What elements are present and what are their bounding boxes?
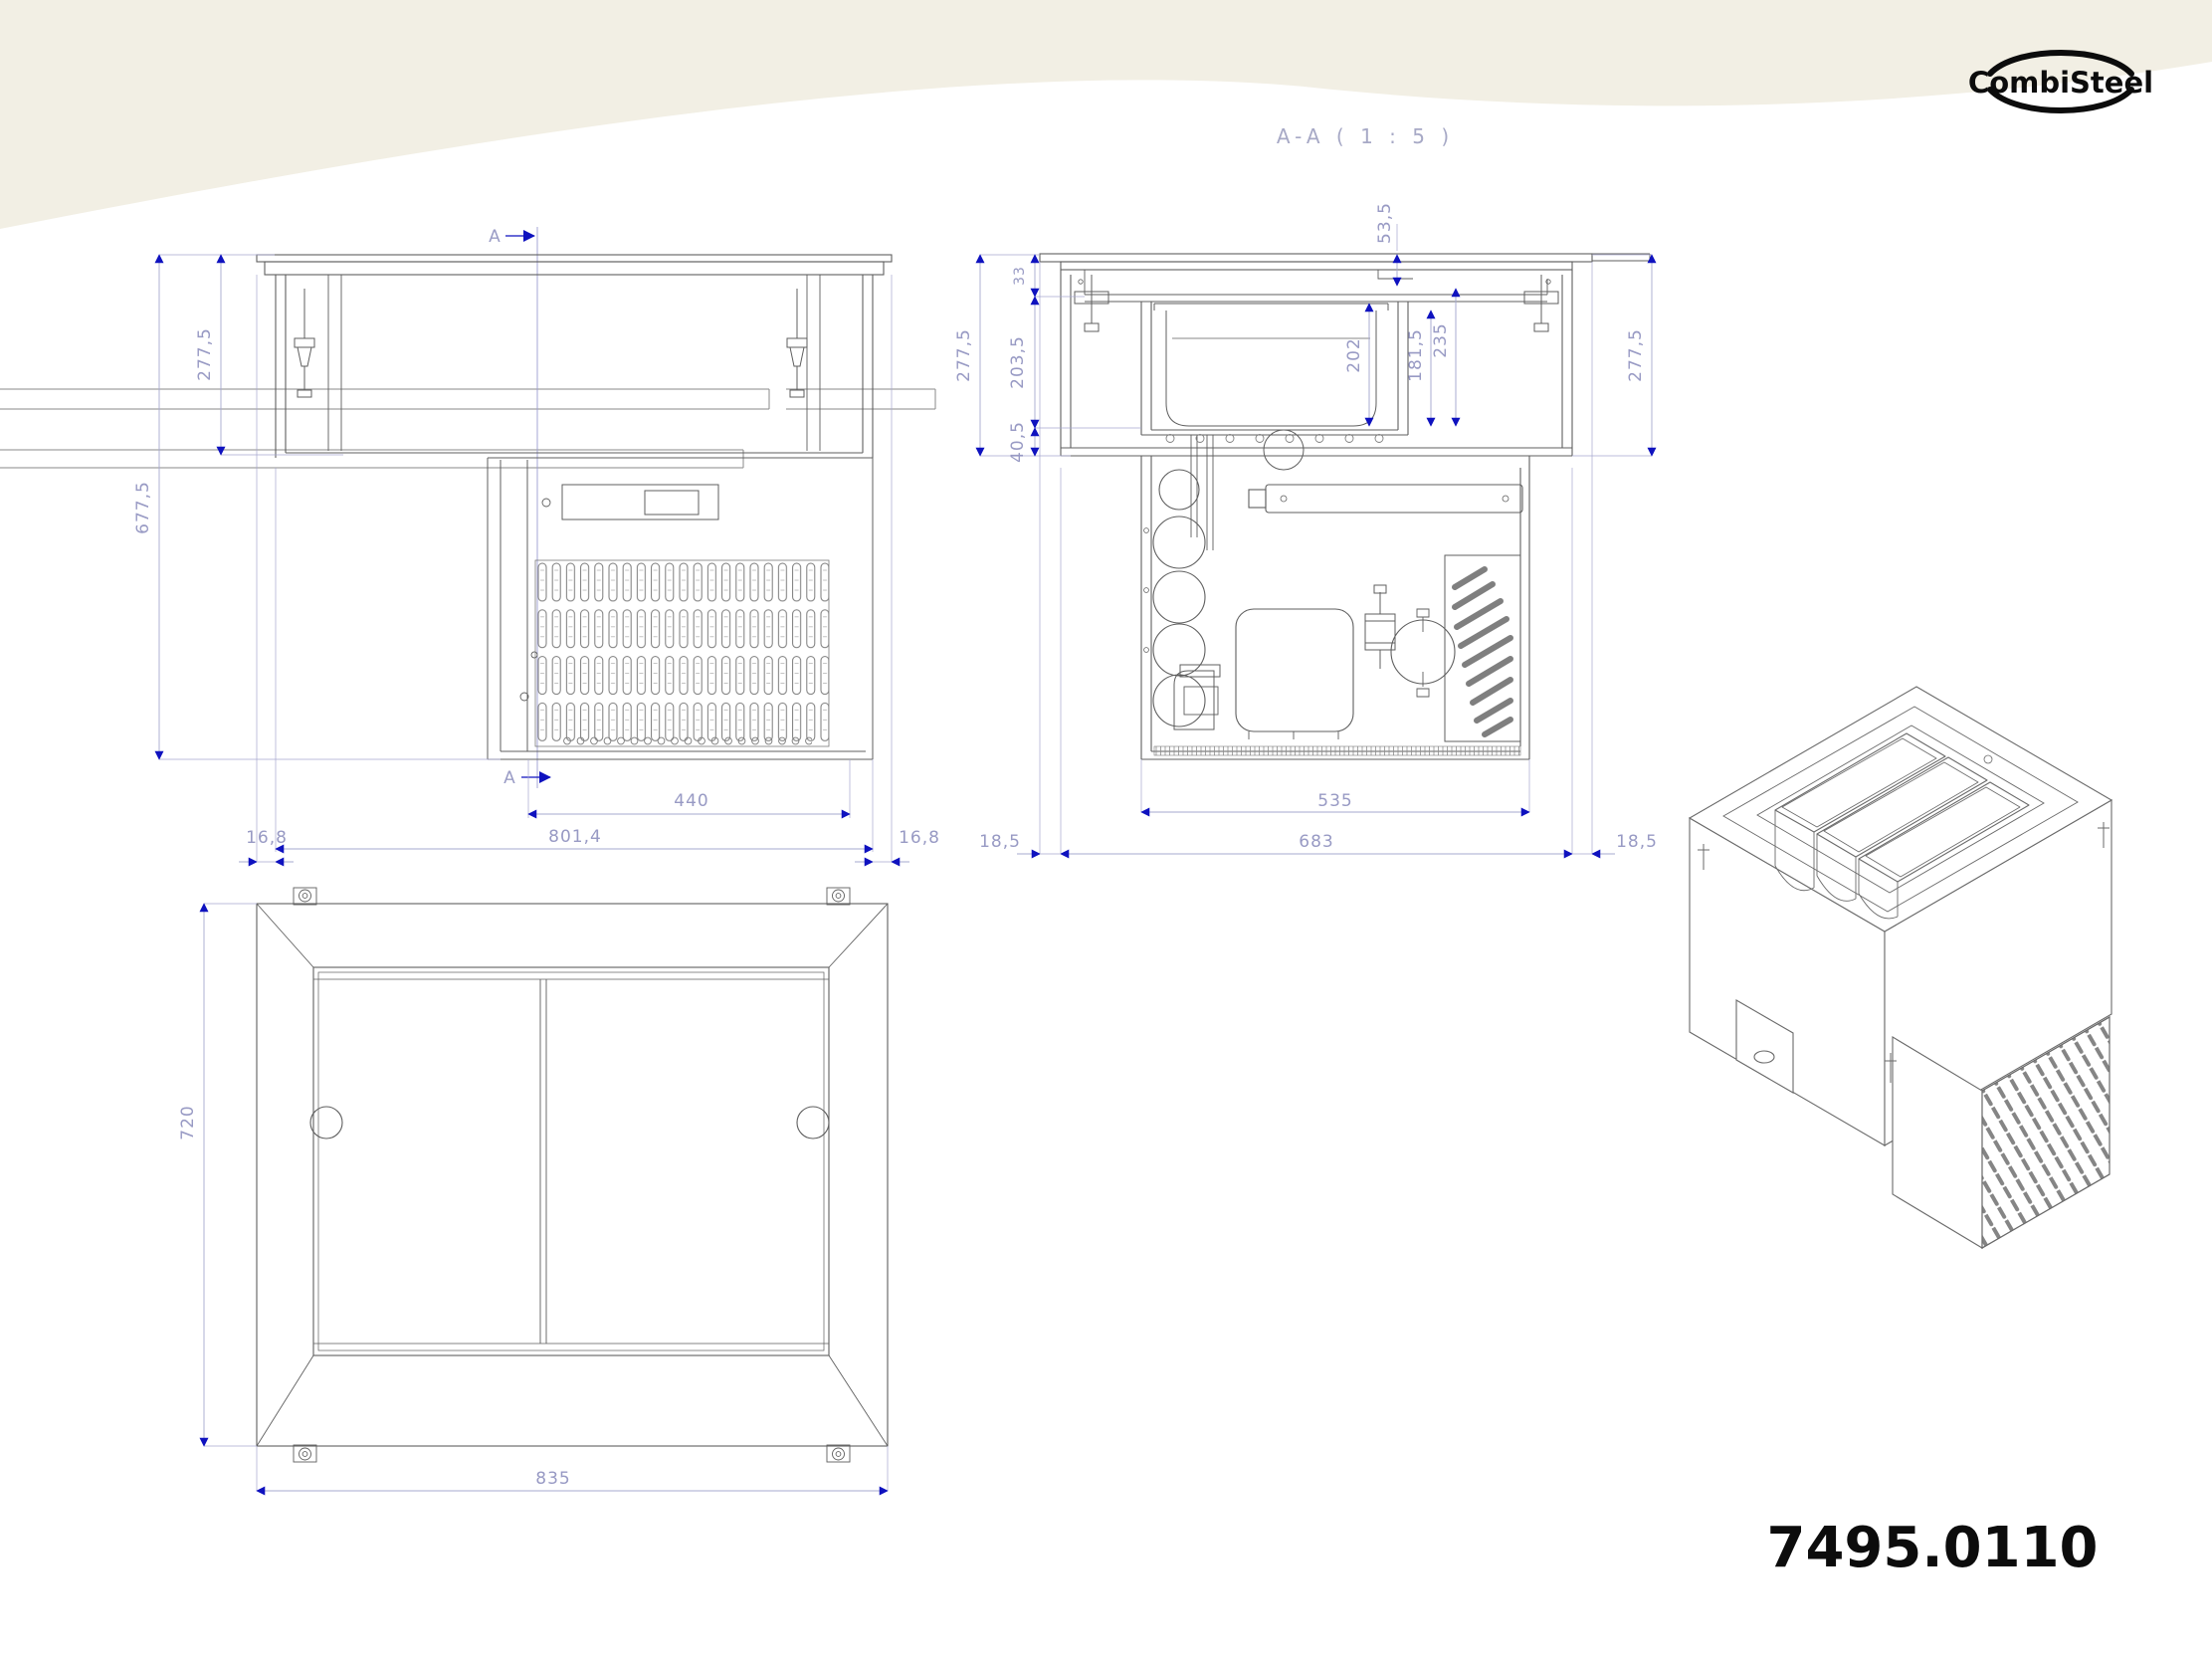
dim-section-well-depth: 235: [1431, 322, 1451, 357]
dim-plan-width: 835: [535, 1469, 570, 1489]
plan-view-linework: [257, 888, 888, 1462]
front-vent-holes-row: [562, 735, 812, 746]
dim-plan-depth: 720: [178, 1105, 198, 1140]
front-vent-grille: [535, 560, 829, 746]
counter-projection-lines: [0, 389, 935, 468]
technical-drawing-page: CombiSteel A A: [0, 0, 2212, 1659]
dim-section-body-depth: 683: [1299, 832, 1333, 852]
section-view: A-A ( 1 : 5 ): [954, 124, 1658, 854]
plan-view: 720 835: [178, 888, 888, 1491]
drawing-canvas: CombiSteel A A: [0, 0, 2212, 1659]
section-vent-panel: [1445, 555, 1520, 741]
dim-front-flange-left: 16,8: [246, 828, 288, 848]
section-marker-bottom-label: A: [503, 768, 515, 788]
dim-front-body-width: 801,4: [548, 827, 602, 847]
section-view-linework: [1040, 254, 1650, 759]
front-view-dimensions: [159, 255, 909, 862]
dim-section-left-total: 277,5: [954, 328, 974, 382]
dim-front-flange-right: 16,8: [899, 828, 940, 848]
dim-section-bottom-step: 40,5: [1008, 421, 1028, 463]
section-base-hatch: [1154, 746, 1520, 755]
dim-front-vent-width: 440: [674, 791, 708, 811]
header-wave-background: [0, 0, 2212, 229]
section-well-bumps: [1164, 433, 1395, 444]
dim-section-pan-inner-depth: 181,5: [1406, 328, 1426, 382]
section-marker-top-label: A: [489, 227, 501, 247]
dim-front-total-height: 677,5: [133, 481, 153, 534]
plan-view-dimensions: [204, 904, 888, 1491]
logo-text: CombiSteel: [1968, 66, 2153, 100]
dim-section-counter-step: 33: [1012, 266, 1028, 286]
dim-section-machine-width: 535: [1317, 791, 1352, 811]
dim-front-flange-height: 277,5: [195, 327, 215, 381]
isometric-view: [1690, 687, 2111, 1248]
dim-section-flange-right: 18,5: [1616, 832, 1658, 852]
dim-section-right-total: 277,5: [1626, 328, 1646, 382]
dim-section-mid-height: 203,5: [1008, 335, 1028, 389]
dim-section-pan-depth: 202: [1344, 337, 1364, 372]
dim-section-flange-step: 53,5: [1375, 202, 1395, 244]
section-view-title: A-A ( 1 : 5 ): [1277, 124, 1454, 148]
product-code: 7495.0110: [1767, 1516, 2099, 1580]
front-view: A A: [133, 227, 940, 862]
dim-section-flange-left: 18,5: [979, 832, 1021, 852]
